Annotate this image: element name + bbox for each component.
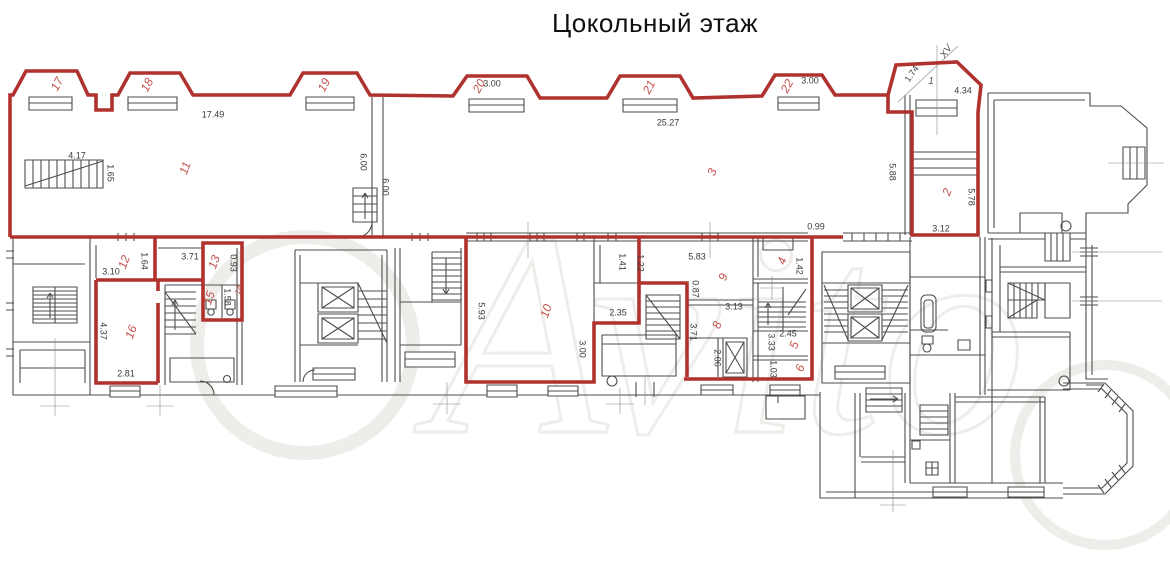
floor-plan-drawing: Avito — [0, 0, 1170, 576]
stairs-icon-divider — [353, 188, 377, 237]
bay-windows — [29, 97, 957, 116]
toilet-icon-1 — [206, 300, 216, 315]
toilet-icon-2 — [225, 300, 235, 315]
watermark-text: Avito — [412, 174, 1026, 495]
stairs-icon-upper-left — [25, 160, 103, 188]
stairs-icon-left — [33, 287, 77, 323]
stairs-icon-core — [358, 283, 387, 343]
floor-plan-page: Цокольный этаж Avito — [0, 0, 1170, 576]
elevator-shafts-central — [318, 283, 358, 343]
stairs-icon-inner-left — [165, 292, 196, 334]
